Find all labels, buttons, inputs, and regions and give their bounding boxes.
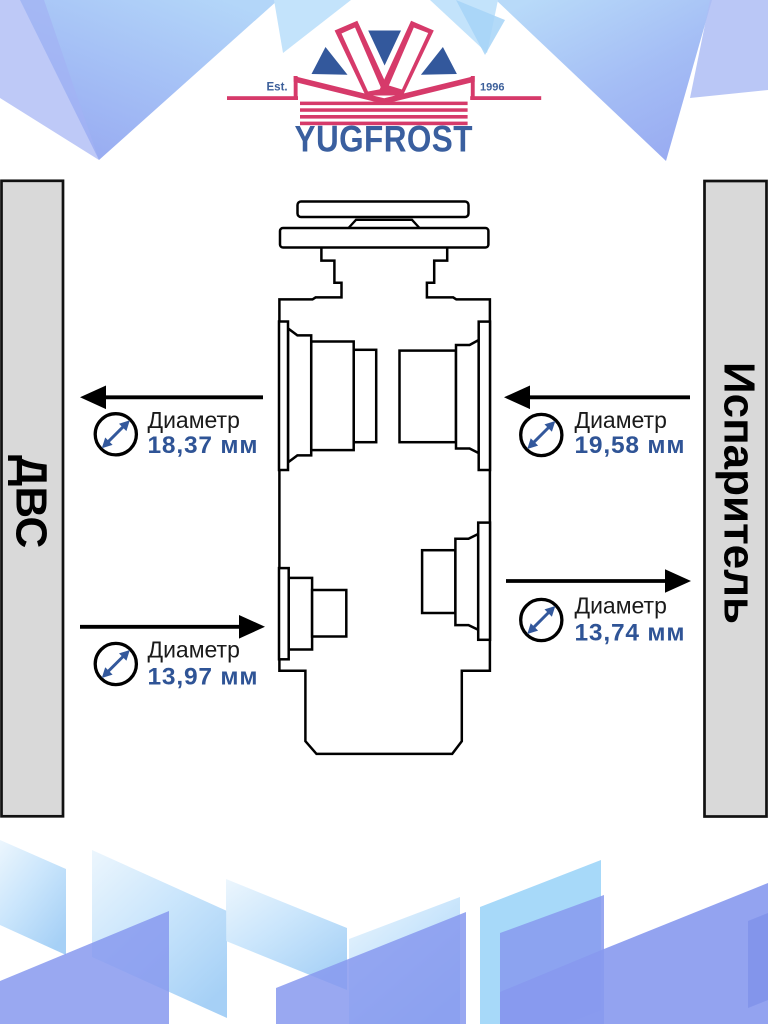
svg-text:13,97 мм: 13,97 мм [148,663,259,690]
svg-text:18,37 мм: 18,37 мм [148,432,259,459]
svg-text:Диаметр: Диаметр [575,592,667,618]
svg-text:Диаметр: Диаметр [148,637,240,663]
svg-text:YUGFROST: YUGFROST [295,119,473,160]
svg-text:ДВС: ДВС [7,455,56,548]
svg-text:13,74 мм: 13,74 мм [575,619,686,646]
svg-text:Est.: Est. [267,82,288,94]
svg-text:19,58 мм: 19,58 мм [575,432,686,459]
svg-text:Испаритель: Испаритель [715,362,764,624]
svg-text:Диаметр: Диаметр [148,407,240,433]
svg-text:Диаметр: Диаметр [575,407,667,433]
svg-text:1996: 1996 [480,82,504,94]
